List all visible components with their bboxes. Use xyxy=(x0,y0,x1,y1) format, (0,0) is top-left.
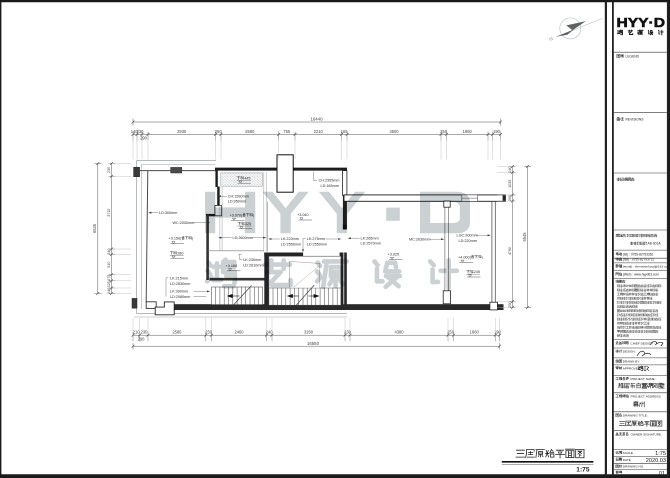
svg-text:WC:2000mm: WC:2000mm xyxy=(173,221,195,225)
svg-text:445: 445 xyxy=(244,176,250,180)
svg-text:325: 325 xyxy=(107,281,111,287)
svg-text:DRAWN BY:: DRAWN BY: xyxy=(623,360,640,364)
svg-text:230: 230 xyxy=(344,330,352,335)
svg-text:230: 230 xyxy=(137,129,145,134)
svg-text:6545: 6545 xyxy=(522,232,527,242)
svg-text:LD:2550mm: LD:2550mm xyxy=(307,243,327,247)
svg-text:16550: 16550 xyxy=(307,341,320,346)
svg-text:OWNER SIGNATURE:: OWNER SIGNATURE: xyxy=(631,432,663,436)
svg-text:1:75: 1:75 xyxy=(576,467,590,474)
svg-text:LEGEND: LEGEND xyxy=(626,55,640,59)
svg-text:SCALE: SCALE xyxy=(623,451,633,455)
svg-text:LD:2080mm: LD:2080mm xyxy=(170,295,190,299)
svg-text:2930: 2930 xyxy=(177,129,187,134)
svg-text:4760: 4760 xyxy=(508,247,512,255)
svg-text:LGC:900mm: LGC:900mm xyxy=(457,234,478,238)
svg-text:250: 250 xyxy=(440,129,448,134)
svg-text:4380: 4380 xyxy=(394,330,404,335)
svg-text:A8-301A: A8-301A xyxy=(648,242,662,246)
svg-text:(email) : shenzhenhyyd@163.com: (email) : shenzhenhyyd@163.com xyxy=(623,265,670,269)
svg-text:DESIGN:: DESIGN: xyxy=(623,350,636,354)
svg-text:210: 210 xyxy=(133,330,141,335)
svg-text:1860: 1860 xyxy=(463,129,473,134)
svg-text:LK:265mm: LK:265mm xyxy=(361,236,379,240)
svg-text:MC:2630mm: MC:2630mm xyxy=(409,237,430,241)
svg-text:6535: 6535 xyxy=(92,223,97,233)
svg-text:250: 250 xyxy=(508,301,512,307)
svg-text:230: 230 xyxy=(141,330,149,335)
svg-text:LD:165mm: LD:165mm xyxy=(321,184,339,188)
svg-text:LK:300mm: LK:300mm xyxy=(170,290,188,294)
svg-text:LK:275mm: LK:275mm xyxy=(307,237,325,241)
svg-text:(tel) : 0755-82793362: (tel) : 0755-82793362 xyxy=(623,252,654,256)
svg-text:DATE: DATE xyxy=(623,458,631,462)
svg-text:HYY·D: HYY·D xyxy=(617,16,666,30)
svg-text:290: 290 xyxy=(138,337,146,342)
svg-text:APPROVED:: APPROVED: xyxy=(623,367,641,371)
svg-text:LD:2600mm: LD:2600mm xyxy=(233,236,253,240)
svg-text:4500: 4500 xyxy=(389,129,399,134)
svg-text:2210: 2210 xyxy=(314,129,324,134)
svg-text:245: 245 xyxy=(474,270,480,274)
svg-text:LD:2610mm: LD:2610mm xyxy=(243,264,263,268)
svg-text:190: 190 xyxy=(493,129,501,134)
svg-text:LD:2830mm: LD:2830mm xyxy=(170,282,190,286)
svg-text:1:75: 1:75 xyxy=(655,451,666,457)
svg-text:PROJECT ADDRESS:: PROJECT ADDRESS: xyxy=(631,395,662,399)
svg-text:16440: 16440 xyxy=(311,117,324,122)
svg-text:2460: 2460 xyxy=(234,330,244,335)
svg-text:240: 240 xyxy=(107,288,111,294)
svg-text:230: 230 xyxy=(107,167,111,173)
svg-text:DRAWING TITLE:: DRAWING TITLE: xyxy=(623,414,648,418)
svg-text:CH:2355mm: CH:2355mm xyxy=(319,179,340,183)
svg-text:LK:230mm: LK:230mm xyxy=(243,258,261,262)
svg-text:3715: 3715 xyxy=(107,208,111,216)
svg-text:LD:2550mm: LD:2550mm xyxy=(281,243,301,247)
svg-text:(fax) : 0755-82793712: (fax) : 0755-82793712 xyxy=(623,258,655,262)
svg-text:275: 275 xyxy=(107,275,111,281)
svg-text:(Web) : www.hyyd63.com: (Web) : www.hyyd63.com xyxy=(623,273,659,277)
svg-text:755: 755 xyxy=(283,129,291,134)
svg-text:280: 280 xyxy=(177,251,183,255)
svg-text:2580: 2580 xyxy=(245,129,255,134)
svg-text:3260: 3260 xyxy=(304,330,314,335)
svg-text:LD:220mm: LD:220mm xyxy=(459,239,477,243)
svg-text:290: 290 xyxy=(140,135,148,140)
svg-text:165: 165 xyxy=(341,129,349,134)
svg-text:LD:300mm: LD:300mm xyxy=(159,211,177,215)
svg-text:LK:215mm: LK:215mm xyxy=(170,277,188,281)
svg-text:LK:220mm: LK:220mm xyxy=(281,237,299,241)
svg-text:240: 240 xyxy=(508,166,512,172)
svg-text:1035: 1035 xyxy=(508,180,512,188)
svg-text:910: 910 xyxy=(107,262,111,268)
svg-text:LD:950mm: LD:950mm xyxy=(228,200,246,204)
svg-text:REVISIONS: REVISIONS xyxy=(626,117,645,121)
svg-text:+3.150(: +3.150( xyxy=(169,237,183,241)
svg-text:2580: 2580 xyxy=(172,330,182,335)
svg-text:+4.000(: +4.000( xyxy=(458,255,472,259)
svg-text:1860: 1860 xyxy=(470,330,480,335)
svg-text:DRAWING NO.: DRAWING NO. xyxy=(623,465,644,469)
svg-text:CHIEF DESIGN: CHIEF DESIGN xyxy=(631,341,653,345)
svg-text:260: 260 xyxy=(215,129,223,134)
svg-text:PROJECT NAME :: PROJECT NAME : xyxy=(631,377,657,381)
svg-text:+3.025: +3.025 xyxy=(388,253,400,257)
svg-text:01: 01 xyxy=(659,471,665,477)
svg-text:LD:2570mm: LD:2570mm xyxy=(361,242,381,246)
svg-text:+3.040: +3.040 xyxy=(297,213,309,217)
svg-text:240: 240 xyxy=(107,249,111,255)
svg-text:260: 260 xyxy=(508,195,512,201)
